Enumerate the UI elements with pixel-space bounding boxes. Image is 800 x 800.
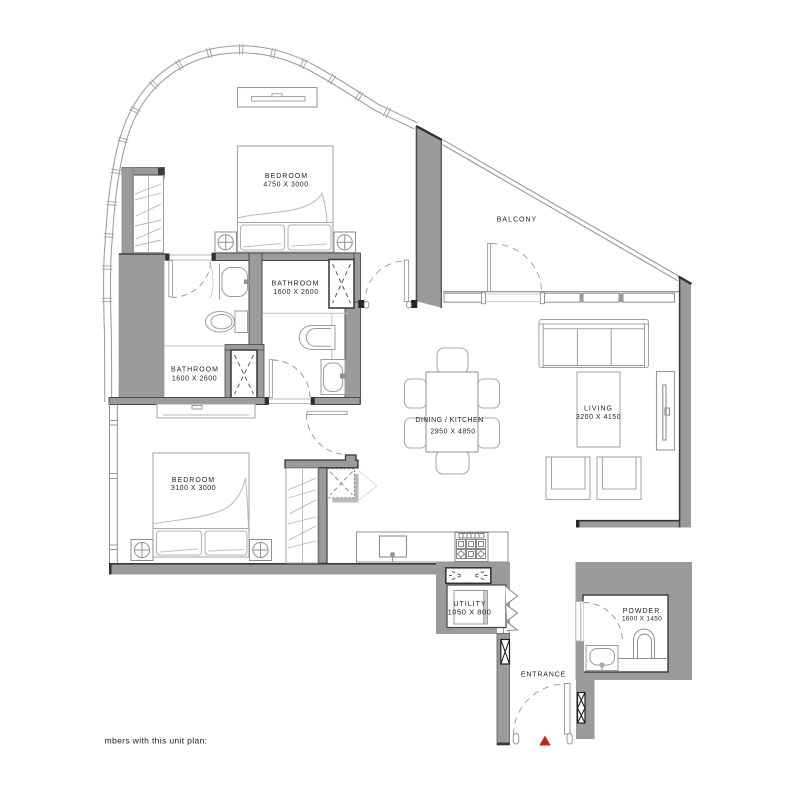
svg-text:4750 X 3000: 4750 X 3000 bbox=[263, 182, 308, 189]
svg-text:1600 X 1450: 1600 X 1450 bbox=[622, 616, 662, 623]
svg-text:ENTRANCE: ENTRANCE bbox=[521, 672, 566, 679]
svg-text:1600 X 2600: 1600 X 2600 bbox=[273, 289, 318, 296]
svg-text:BATHROOM: BATHROOM bbox=[272, 281, 320, 288]
svg-text:BALCONY: BALCONY bbox=[497, 217, 537, 224]
svg-text:DINING / KITCHEN: DINING / KITCHEN bbox=[415, 417, 483, 424]
svg-text:BEDROOM: BEDROOM bbox=[265, 173, 308, 180]
svg-text:1050 X 800: 1050 X 800 bbox=[448, 608, 492, 617]
svg-text:2950 X 4850: 2950 X 4850 bbox=[430, 429, 475, 436]
svg-text:BATHROOM: BATHROOM bbox=[171, 367, 219, 374]
svg-text:LIVING: LIVING bbox=[584, 406, 613, 413]
svg-text:3100 X 3000: 3100 X 3000 bbox=[171, 485, 216, 492]
svg-text:1600 X 2600: 1600 X 2600 bbox=[172, 376, 217, 383]
svg-text:3200 X 4150: 3200 X 4150 bbox=[576, 414, 621, 421]
svg-text:POWDER: POWDER bbox=[623, 608, 661, 615]
svg-text:BEDROOM: BEDROOM bbox=[172, 477, 215, 484]
svg-text:mbers with this unit plan:: mbers with this unit plan: bbox=[105, 736, 208, 746]
